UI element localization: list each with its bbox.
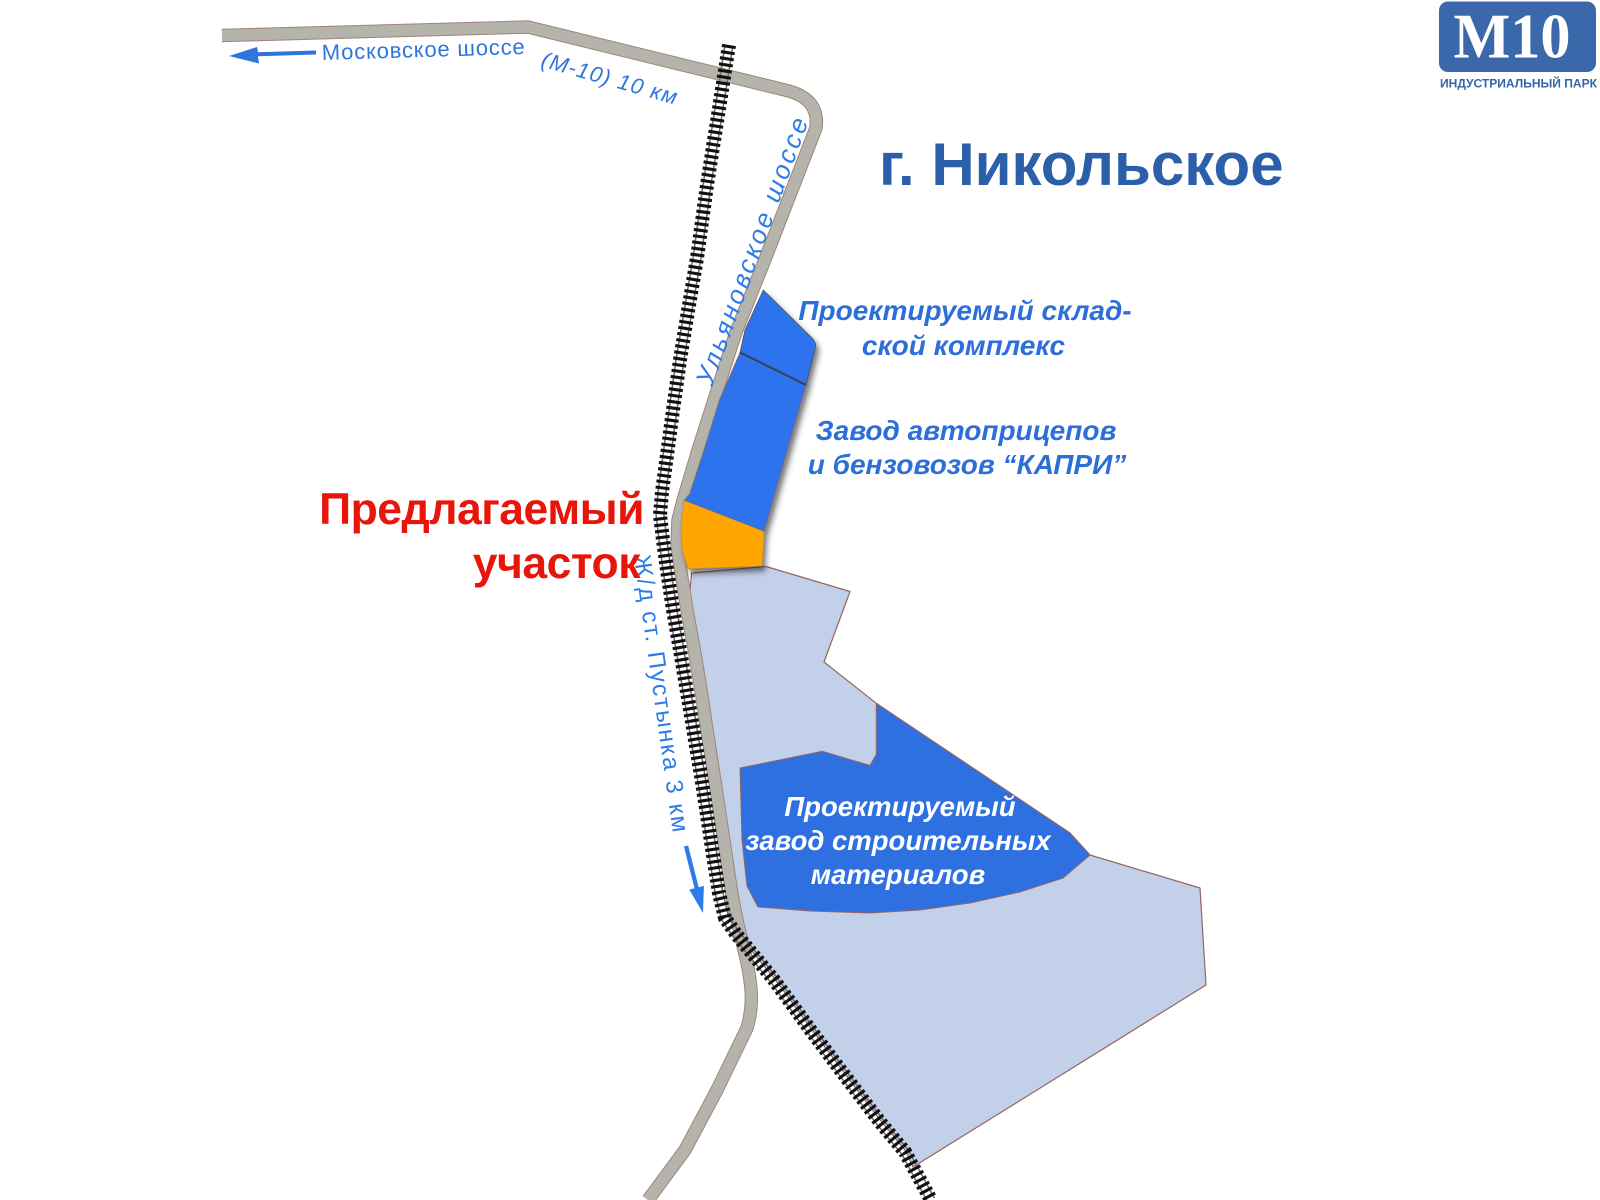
svg-text:материалов: материалов	[811, 859, 985, 890]
svg-text:М10: М10	[1454, 2, 1571, 72]
svg-text:Предлагаемый: Предлагаемый	[319, 485, 644, 534]
svg-text:и бензовозов “КАПРИ”: и бензовозов “КАПРИ”	[808, 449, 1126, 480]
svg-text:участок: участок	[473, 539, 641, 588]
svg-text:Проектируемый склад-: Проектируемый склад-	[798, 295, 1131, 326]
svg-text:ской комплекс: ской комплекс	[862, 330, 1066, 361]
svg-text:завод строительных: завод строительных	[745, 825, 1052, 856]
svg-text:Московское шоссе: Московское шоссе	[321, 34, 525, 65]
svg-text:ИНДУСТРИАЛЬНЫЙ ПАРК: ИНДУСТРИАЛЬНЫЙ ПАРК	[1440, 76, 1597, 91]
svg-text:Завод автоприцепов: Завод автоприцепов	[816, 415, 1117, 446]
svg-text:Проектируемый: Проектируемый	[784, 791, 1015, 822]
svg-text:г. Никольское: г. Никольское	[879, 131, 1284, 198]
